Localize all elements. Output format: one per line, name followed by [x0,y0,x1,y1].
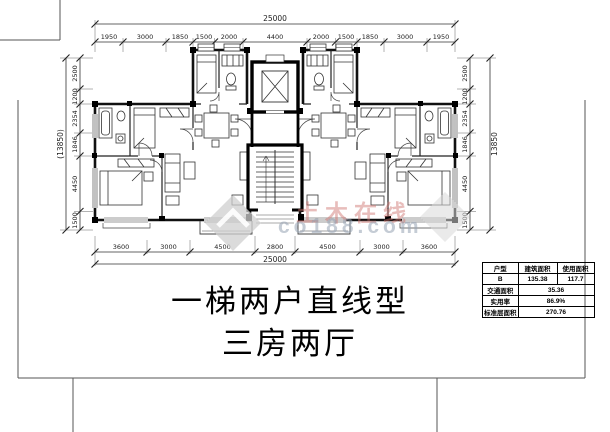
header-unit-type: 户型 [483,263,519,274]
dim-label: 3600 [421,243,438,251]
dim-label: 1500 [196,33,213,41]
dim-label: 2000 [313,33,330,41]
cell-label: 交通面积 [483,285,519,296]
dim-label: 3000 [160,243,177,251]
dim-label: 2500 [461,65,469,82]
dim-label: 1500 [71,212,79,229]
core-elevator-stairs [248,55,302,223]
dim-label: 2800 [267,243,284,251]
table-row: 实用率 86.9% [483,296,595,307]
dim-top-total: 25000 [263,14,287,23]
dim-label: 1950 [433,33,450,41]
dim-label: 2500 [71,65,79,82]
cell-value: 35.36 [518,285,594,296]
cell-unit-type: B [483,274,519,285]
dim-label: 2000 [221,33,238,41]
table-row: 交通面积 35.36 [483,285,595,296]
dim-label: 4400 [267,33,284,41]
table-row: B 135.38 117.7 [483,274,595,285]
dim-label: 3600 [113,243,130,251]
dim-label: 1846 [71,136,79,153]
dim-label: 3000 [397,33,414,41]
cad-floorplan-sheet: 25000 1950 3000 1850 1500 2000 4400 2000… [0,0,610,432]
dim-right-total: 13850 [490,132,499,156]
dim-bottom-total: 25000 [263,255,287,264]
table-row: 标准层面积 270.76 [483,307,595,318]
dim-label: 2354 [71,110,79,127]
dim-label: 3000 [137,33,154,41]
dim-label: 1200 [461,88,469,105]
table-header-row: 户型 建筑面积 使用面积 [483,263,595,274]
dim-label: 1846 [461,136,469,153]
dim-label: 1500 [338,33,355,41]
header-use-area: 使用面积 [557,263,594,274]
dim-label: 3000 [373,243,390,251]
cell-label: 实用率 [483,296,519,307]
area-summary-table: 户型 建筑面积 使用面积 B 135.38 117.7 交通面积 35.36 实… [482,262,595,318]
cell-value: 86.9% [518,296,594,307]
cell-label: 标准层面积 [483,307,519,318]
cell-value: 270.76 [518,307,594,318]
dim-label: 4450 [71,176,79,193]
dim-label: 1850 [172,33,189,41]
plan-title-line2: 三房两厅 [0,322,580,366]
header-build-area: 建筑面积 [518,263,557,274]
cell-build-area: 135.38 [518,274,557,285]
dim-label: 2354 [461,110,469,127]
watermark-url-text: co188.com [278,215,423,239]
cell-use-area: 117.7 [557,274,594,285]
dim-label: 1850 [362,33,379,41]
dim-label: 4500 [319,243,336,251]
dim-label: 1200 [71,88,79,105]
dim-label: 1950 [101,33,118,41]
dim-label: 4450 [461,176,469,193]
dim-left-total: (13850) [56,129,65,159]
